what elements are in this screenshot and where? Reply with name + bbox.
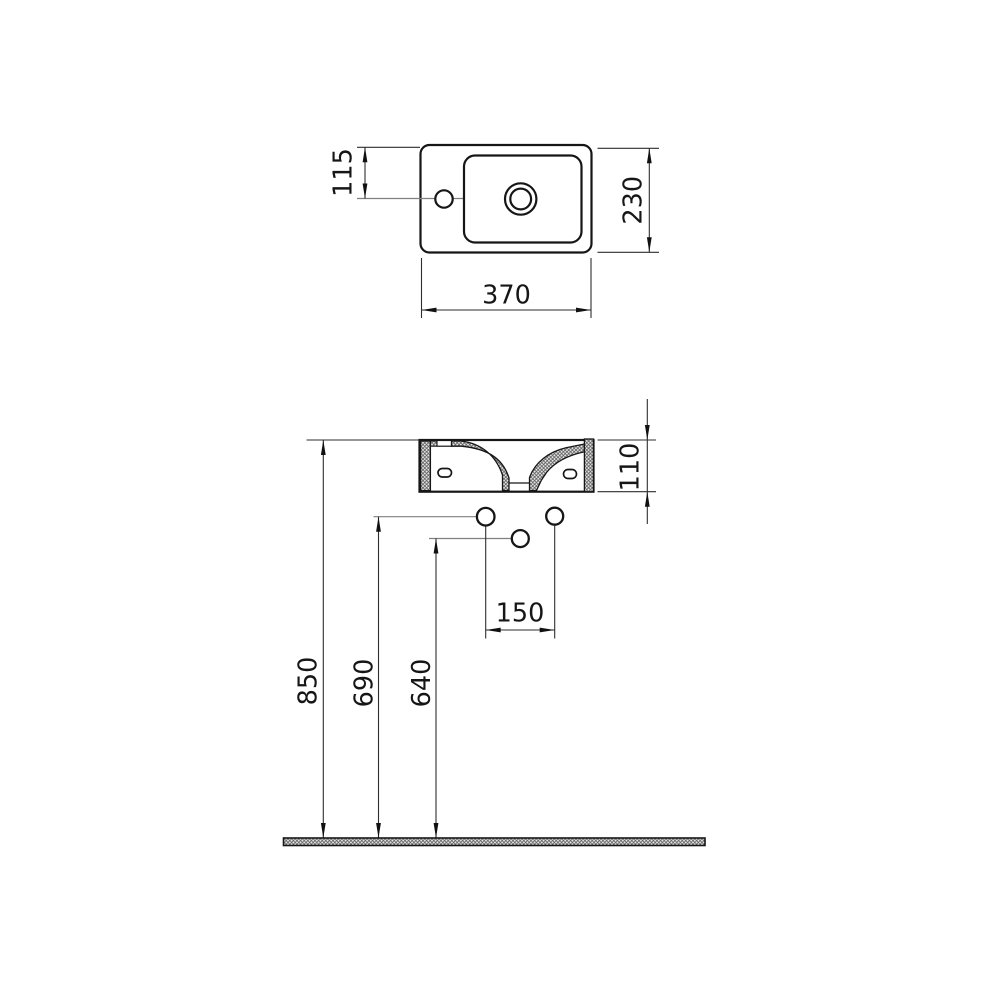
dim-basin-height: 110 (598, 399, 657, 524)
dim-label-basin-depth: 230 (619, 176, 649, 225)
dim-label-basin-width: 370 (482, 281, 531, 311)
arrowhead-up-icon (647, 148, 652, 163)
arrowhead-right-icon (576, 308, 591, 313)
right-wall-section-hatch (584, 439, 593, 492)
right-fixing-slot (564, 470, 577, 479)
dim-tap-center-offset: 115 (329, 147, 421, 198)
arrowhead-down-icon (376, 823, 381, 838)
dim-label-rim-height: 850 (294, 657, 324, 706)
arrowhead-up-icon (434, 539, 439, 554)
fixing-hole-upper-left (477, 508, 495, 526)
floor-line (284, 838, 706, 846)
arrowhead-up-icon (645, 492, 650, 507)
arrowhead-down-icon (321, 823, 326, 838)
arrowhead-down-icon (434, 823, 439, 838)
dim-basin-width: 370 (422, 258, 592, 318)
dim-label-upper-holes-height: 690 (350, 659, 380, 708)
left-wall-section-hatch (421, 441, 431, 491)
fixing-hole-lower (512, 530, 529, 547)
dim-rim-height: 850 (294, 440, 420, 838)
front-section-view: 110 150 850 690 (294, 399, 657, 838)
dim-upper-holes-height: 690 (350, 517, 381, 838)
dim-label-lower-hole-height: 640 (407, 659, 437, 708)
technical-drawing-page: 115 230 370 (0, 0, 990, 990)
arrowhead-up-icon (321, 440, 326, 455)
arrowhead-down-icon (647, 237, 652, 252)
overflow-hole (435, 190, 452, 207)
arrowhead-down-icon (363, 184, 368, 199)
dim-label-hole-spacing: 150 (496, 599, 545, 629)
dim-label-basin-height: 110 (616, 443, 646, 492)
arrowhead-left-icon (422, 308, 437, 313)
dim-basin-depth: 230 (598, 148, 660, 252)
arrowhead-up-icon (363, 147, 368, 162)
top-rim-section-hatch (430, 441, 437, 446)
washbasin-dimension-drawing: 115 230 370 (0, 0, 990, 990)
tap-hole-inner (510, 189, 531, 210)
dim-label-tap-offset: 115 (329, 148, 359, 197)
left-fixing-slot (438, 469, 452, 478)
arrowhead-up-icon (376, 517, 381, 532)
top-view: 115 230 370 (329, 145, 660, 318)
dim-lower-hole-height: 640 (407, 539, 438, 839)
fixing-hole-upper-right (546, 508, 563, 525)
arrowhead-down-icon (645, 425, 650, 440)
